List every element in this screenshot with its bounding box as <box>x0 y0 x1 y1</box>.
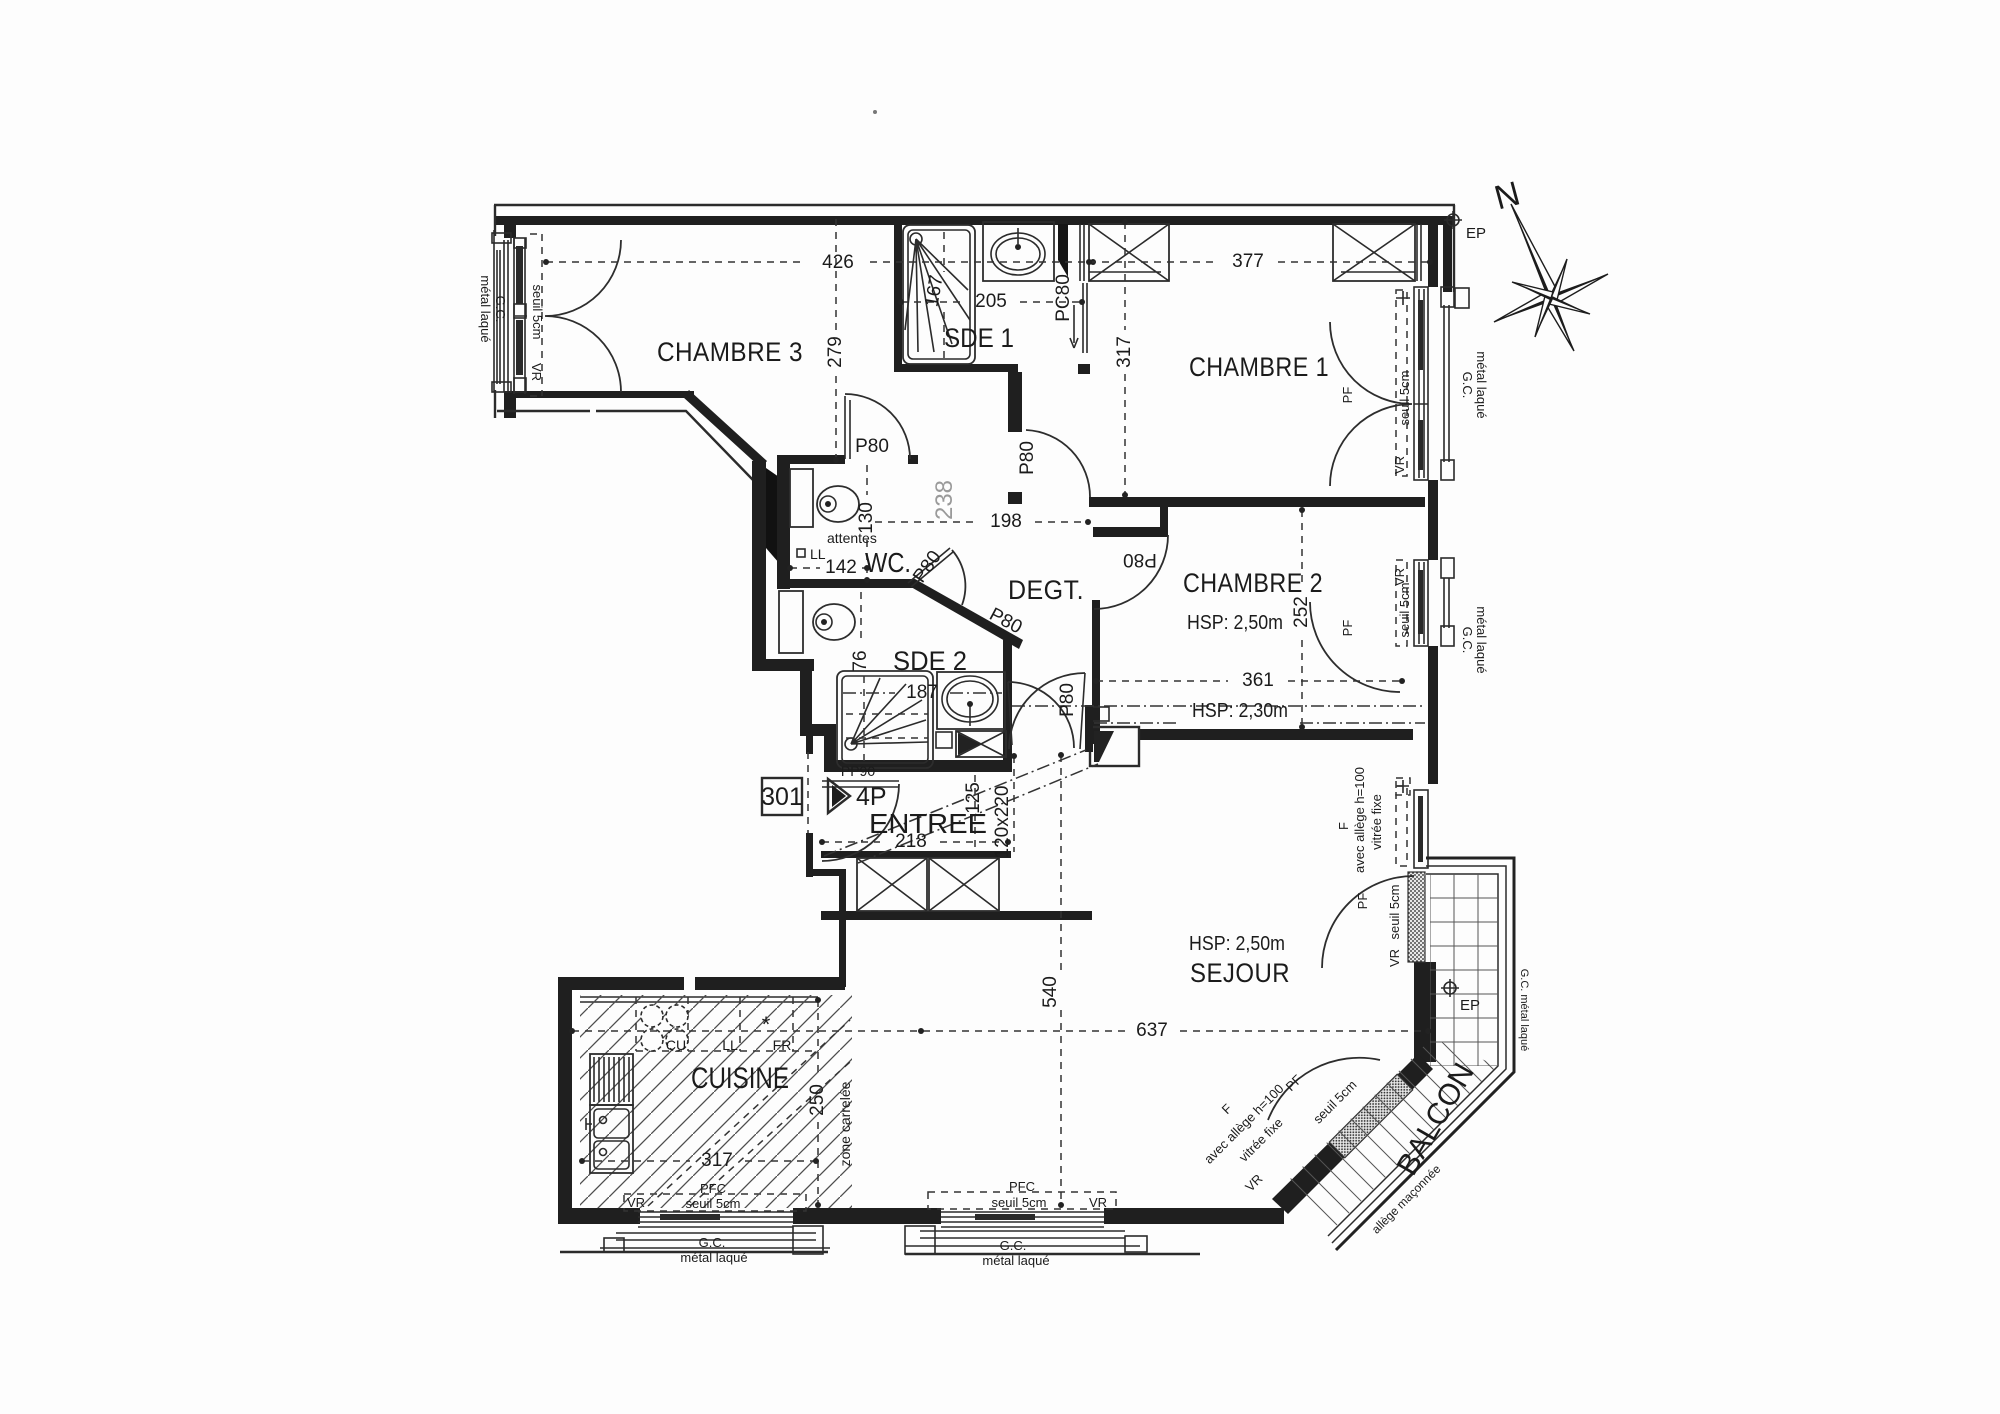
svg-text:PP90: PP90 <box>841 763 875 779</box>
svg-text:187: 187 <box>906 682 938 703</box>
svg-text:métal laqué: métal laqué <box>680 1250 747 1265</box>
svg-text:198: 198 <box>990 511 1022 532</box>
svg-text:P80: P80 <box>1017 441 1038 475</box>
svg-text:G.C.: G.C. <box>1000 1238 1027 1253</box>
svg-text:seuil 5cm: seuil 5cm <box>1397 583 1412 638</box>
svg-text:PF: PF <box>1355 893 1370 910</box>
svg-text:zone carrelée: zone carrelée <box>837 1081 853 1166</box>
svg-text:PFC: PFC <box>700 1181 726 1196</box>
svg-text:218: 218 <box>895 831 927 852</box>
svg-text:120x220: 120x220 <box>992 786 1013 859</box>
svg-text:HSP: 2,30m: HSP: 2,30m <box>1192 700 1288 722</box>
svg-text:VR: VR <box>529 363 544 381</box>
svg-text:G.C.: G.C. <box>699 1235 726 1250</box>
svg-text:*: * <box>762 1012 771 1037</box>
svg-text:EP: EP <box>1466 225 1486 242</box>
svg-text:377: 377 <box>1232 251 1264 272</box>
svg-text:P80: P80 <box>1123 549 1157 570</box>
svg-text:P80: P80 <box>855 436 889 457</box>
svg-text:HSP: 2,50m: HSP: 2,50m <box>1187 612 1283 634</box>
svg-text:540: 540 <box>1040 976 1061 1008</box>
svg-text:PF: PF <box>1340 387 1355 404</box>
svg-text:PC80: PC80 <box>1053 274 1074 322</box>
svg-text:seuil 5cm: seuil 5cm <box>530 285 545 340</box>
svg-text:HSP: 2,50m: HSP: 2,50m <box>1189 933 1285 955</box>
svg-text:G.C.: G.C. <box>1460 627 1475 654</box>
svg-text:VR: VR <box>1392 568 1407 586</box>
svg-text:CU: CU <box>666 1037 686 1053</box>
svg-text:métal laqué: métal laqué <box>1474 351 1489 418</box>
svg-text:métal laqué: métal laqué <box>478 275 493 342</box>
svg-text:637: 637 <box>1136 1020 1168 1041</box>
svg-text:SDE 1: SDE 1 <box>944 323 1014 353</box>
svg-text:PFC: PFC <box>1009 1179 1035 1194</box>
svg-text:205: 205 <box>975 291 1007 312</box>
svg-text:FR: FR <box>773 1037 792 1053</box>
svg-text:seuil 5cm: seuil 5cm <box>1387 885 1402 940</box>
svg-text:métal laqué: métal laqué <box>1474 606 1489 673</box>
svg-text:avec allège h=100: avec allège h=100 <box>1352 767 1367 873</box>
svg-text:LL: LL <box>722 1037 738 1053</box>
svg-text:317: 317 <box>701 1150 733 1171</box>
svg-text:PF: PF <box>1340 620 1355 637</box>
svg-text:P80: P80 <box>1057 683 1078 717</box>
svg-text:361: 361 <box>1242 670 1274 691</box>
svg-text:EP: EP <box>1460 997 1480 1014</box>
svg-text:426: 426 <box>822 252 854 273</box>
svg-text:250: 250 <box>807 1084 828 1116</box>
svg-text:attentes: attentes <box>827 530 877 546</box>
svg-text:vitrée fixe: vitrée fixe <box>1369 794 1384 850</box>
svg-text:G.C.: G.C. <box>493 296 508 323</box>
svg-text:317: 317 <box>1114 336 1135 368</box>
svg-text:LL: LL <box>810 546 826 562</box>
svg-text:DEGT.: DEGT. <box>1008 575 1084 605</box>
svg-text:CUISINE: CUISINE <box>691 1062 789 1095</box>
svg-text:238: 238 <box>931 480 958 520</box>
svg-text:CHAMBRE 1: CHAMBRE 1 <box>1189 352 1329 382</box>
svg-text:F: F <box>1336 822 1351 830</box>
svg-text:SEJOUR: SEJOUR <box>1190 958 1290 988</box>
svg-text:G.C. métal laqué: G.C. métal laqué <box>1518 969 1530 1052</box>
svg-text:301: 301 <box>761 783 803 811</box>
svg-text:métal laqué: métal laqué <box>982 1253 1049 1268</box>
svg-text:G.C.: G.C. <box>1460 372 1475 399</box>
svg-text:WC.: WC. <box>865 547 911 578</box>
svg-text:VR: VR <box>627 1195 645 1210</box>
svg-text:CHAMBRE 2: CHAMBRE 2 <box>1183 568 1323 598</box>
svg-text:seuil 5cm: seuil 5cm <box>686 1196 741 1211</box>
svg-text:CHAMBRE 3: CHAMBRE 3 <box>657 337 803 367</box>
svg-text:seuil 5cm: seuil 5cm <box>992 1195 1047 1210</box>
svg-text:4P: 4P <box>856 783 887 811</box>
svg-text:SDE 2: SDE 2 <box>893 646 967 676</box>
svg-text:142: 142 <box>825 557 857 578</box>
svg-text:252: 252 <box>1291 596 1312 628</box>
svg-text:76: 76 <box>850 650 871 671</box>
svg-text:VR: VR <box>1387 949 1402 967</box>
svg-text:VR: VR <box>1089 1195 1107 1210</box>
svg-text:seuil 5cm: seuil 5cm <box>1397 371 1412 426</box>
svg-text:279: 279 <box>825 336 846 368</box>
svg-text:125: 125 <box>963 782 984 814</box>
svg-text:VR: VR <box>1392 456 1407 474</box>
